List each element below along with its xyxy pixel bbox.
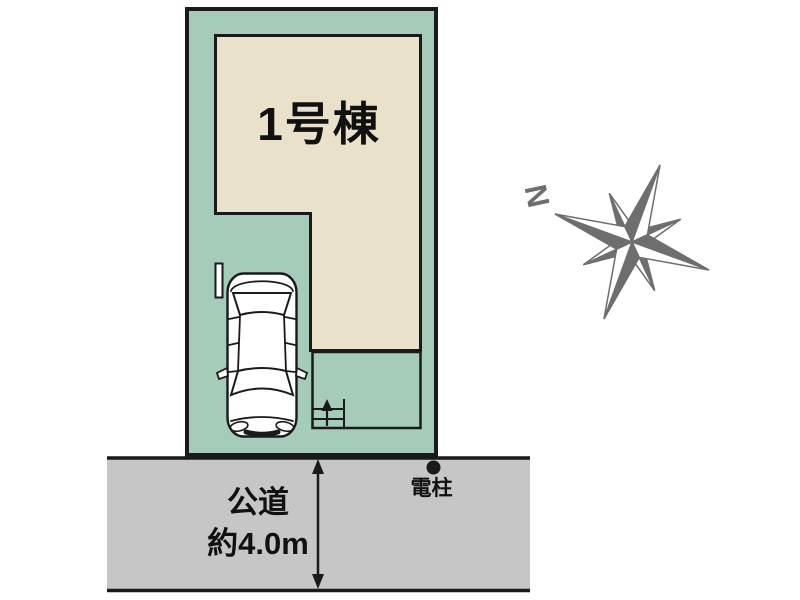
compass-north-label: N (518, 181, 557, 210)
road-label-type: 公道 (185, 485, 331, 521)
utility-pole-dot (427, 461, 441, 475)
car-icon (217, 274, 307, 437)
compass-rose-icon: N (518, 137, 738, 347)
building-label: 1号棟 (219, 98, 419, 151)
gate-post (216, 264, 223, 298)
site-plan-drawing: N (0, 0, 800, 600)
site-plan-canvas: N 1号棟 公道 約4.0m 電柱 (0, 0, 800, 600)
car-bumper (246, 432, 278, 434)
road-label-width: 約4.0m (185, 526, 331, 562)
road-label: 公道 約4.0m (185, 485, 331, 561)
utility-pole-label: 電柱 (383, 477, 480, 501)
